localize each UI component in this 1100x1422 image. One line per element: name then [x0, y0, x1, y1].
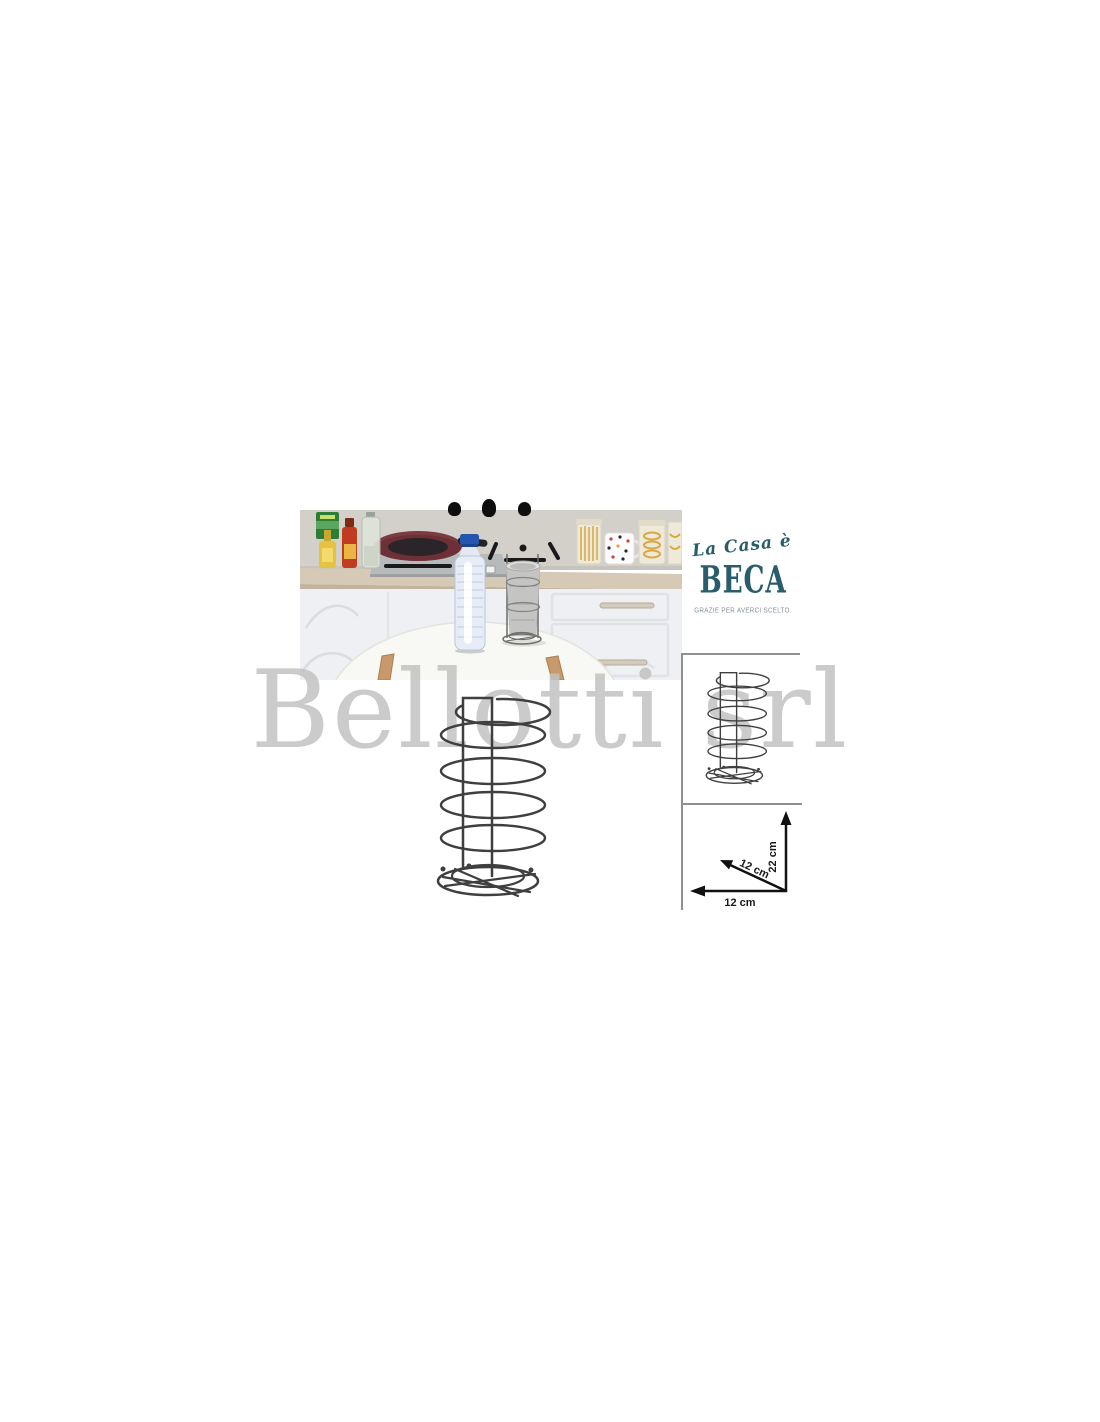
wire-rack-shape — [438, 698, 550, 896]
brand-script-text: La Casa è — [691, 531, 793, 561]
product-listing-image: La Casa è BECA GRAZIE PER AVERCI SCELTO … — [0, 0, 1100, 1422]
wire-rack-thumbnail-illustration — [699, 667, 772, 785]
brand-logo: La Casa è BECA GRAZIE PER AVERCI SCELTO — [692, 536, 792, 622]
drawer-handle — [600, 603, 654, 608]
hanging-hook-blob — [482, 499, 496, 517]
panel-border-top — [681, 653, 800, 655]
panel-border-bottom — [681, 803, 802, 805]
hanging-hook-blob — [448, 502, 461, 516]
condiment-bottles — [316, 512, 380, 568]
hanging-hook-blob — [518, 502, 531, 516]
brand-name: BECA — [700, 562, 785, 600]
brand-tagline: GRAZIE PER AVERCI SCELTO — [687, 606, 796, 615]
height-dimension-label: 22 cm — [767, 841, 779, 872]
wire-rack-main-illustration — [425, 688, 555, 898]
dimension-diagram: 22 cm 12 cm 12 cm — [676, 806, 806, 912]
width-dimension-label: 12 cm — [724, 897, 755, 909]
